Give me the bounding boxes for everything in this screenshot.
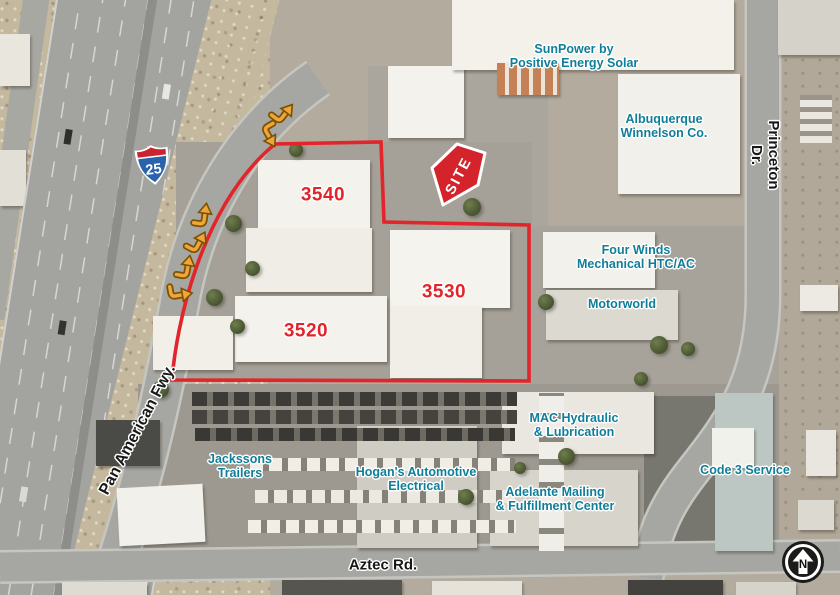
building (282, 580, 402, 595)
trailer-row (192, 392, 517, 406)
building (800, 285, 838, 311)
building-3540 (246, 228, 372, 292)
tree (538, 294, 554, 310)
label-four-winds: Four Winds Mechanical HTC/AC (577, 243, 695, 271)
tree (650, 336, 668, 354)
tree (634, 372, 648, 386)
label-hogans: Hogan's Automotive Electrical (356, 465, 477, 493)
tree (558, 448, 575, 465)
label-jackssons: Jackssons Trailers (208, 452, 272, 480)
tree (206, 289, 223, 306)
tree (225, 215, 242, 232)
building (806, 430, 836, 476)
tree (681, 342, 695, 356)
building-3530 (390, 306, 482, 378)
north-label: N (799, 559, 807, 571)
label-winnelson: Albuquerque Winnelson Co. (621, 112, 708, 140)
building (117, 484, 206, 546)
label-aztec-rd: Aztec Rd. (349, 558, 417, 575)
building (0, 150, 26, 206)
label-code3: Code 3 Service (700, 463, 790, 477)
building-code3-white (712, 428, 754, 468)
tree (463, 198, 481, 216)
label-princeton-dr: Princeton Dr. (747, 117, 781, 193)
car-row (800, 95, 832, 143)
building (736, 582, 796, 595)
building (432, 581, 522, 595)
label-sunpower: SunPower by Positive Energy Solar (510, 42, 639, 70)
tree (230, 319, 245, 334)
label-adelante: Adelante Mailing & Fulfillment Center (496, 485, 615, 513)
parcel-number-3520: 3520 (284, 320, 328, 341)
building (798, 500, 834, 530)
label-mac-hydraulic: MAC Hydraulic & Lubrication (530, 411, 619, 439)
tree (514, 462, 526, 474)
building (62, 582, 147, 595)
parcel-number-3540: 3540 (301, 184, 345, 205)
trailer-row (195, 428, 515, 441)
building (388, 66, 464, 138)
parcel-number-3530: 3530 (422, 281, 466, 302)
building (778, 0, 840, 55)
aerial-map: SITE 25 N SunPower by Positive Energy So… (0, 0, 840, 595)
building (0, 34, 30, 86)
tree (289, 143, 303, 157)
trailer-row (192, 410, 517, 424)
trailer-row (248, 520, 516, 533)
tree (245, 261, 260, 276)
building (628, 580, 723, 595)
label-motorworld: Motorworld (588, 297, 656, 311)
